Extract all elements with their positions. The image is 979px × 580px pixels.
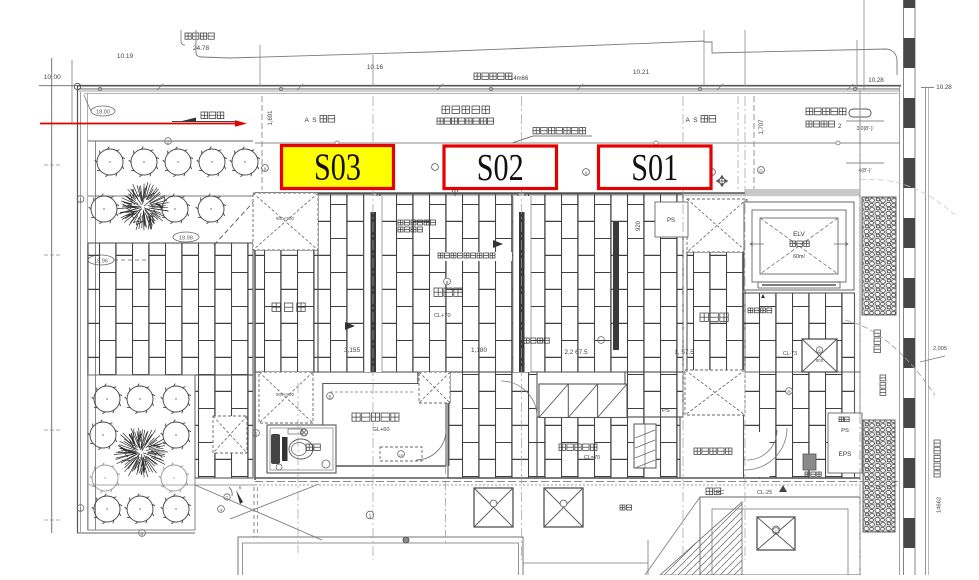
svg-text:A S: A S <box>685 117 698 124</box>
svg-text:GL+60: GL+60 <box>373 427 390 433</box>
svg-text:A S: A S <box>304 117 317 124</box>
svg-text:PS: PS <box>662 408 670 414</box>
svg-text:S01: S01 <box>631 147 678 189</box>
svg-text:PS: PS <box>841 428 849 434</box>
svg-text:3,155: 3,155 <box>344 347 360 354</box>
svg-text:10.28: 10.28 <box>868 77 884 84</box>
svg-text:1,180: 1,180 <box>471 347 487 354</box>
svg-text:14m66: 14m66 <box>510 76 529 82</box>
svg-text:18.00: 18.00 <box>96 110 110 116</box>
svg-text:800: 800 <box>816 358 824 363</box>
svg-text:B: B <box>328 395 331 400</box>
svg-text:1,707: 1,707 <box>759 119 765 135</box>
svg-text:ELV: ELV <box>793 231 805 238</box>
svg-text:24.78: 24.78 <box>193 45 210 52</box>
svg-text:10.28: 10.28 <box>936 84 952 91</box>
svg-text:CL+70: CL+70 <box>434 313 451 319</box>
svg-text:CL-73: CL-73 <box>783 351 797 357</box>
svg-text:C: C <box>774 530 777 535</box>
svg-text:RC: RC <box>716 490 724 496</box>
svg-text:18.98: 18.98 <box>179 236 193 242</box>
svg-text:4(8'-)': 4(8'-)' <box>859 168 872 174</box>
svg-text:10.21: 10.21 <box>633 69 650 76</box>
svg-text:1,691: 1,691 <box>268 110 274 126</box>
svg-text:2,005: 2,005 <box>933 346 947 352</box>
svg-text:60m/: 60m/ <box>793 254 805 260</box>
svg-text:900×900: 900×900 <box>276 392 294 397</box>
svg-text:10.19: 10.19 <box>117 53 134 60</box>
svg-text:10: 10 <box>399 454 403 458</box>
svg-text:3.0(8'-)': 3.0(8'-)' <box>856 126 873 132</box>
svg-text:2,2 67.5: 2,2 67.5 <box>564 349 588 356</box>
svg-text:CL=70: CL=70 <box>584 455 600 461</box>
svg-text:EPS: EPS <box>839 451 852 458</box>
svg-text:1, 57.5: 1, 57.5 <box>674 349 694 356</box>
svg-text:1: 1 <box>369 514 372 520</box>
svg-text:S02: S02 <box>477 147 524 189</box>
svg-text:00: 00 <box>54 74 62 81</box>
svg-text:CL-25: CL-25 <box>757 490 772 496</box>
svg-text:10.16: 10.16 <box>367 64 384 71</box>
svg-text:10: 10 <box>44 74 52 81</box>
svg-text:900×900: 900×900 <box>276 216 294 221</box>
svg-text:PS: PS <box>667 218 675 224</box>
svg-text:14662: 14662 <box>937 497 943 513</box>
svg-text:920: 920 <box>636 220 642 231</box>
svg-text:S03: S03 <box>314 147 361 189</box>
